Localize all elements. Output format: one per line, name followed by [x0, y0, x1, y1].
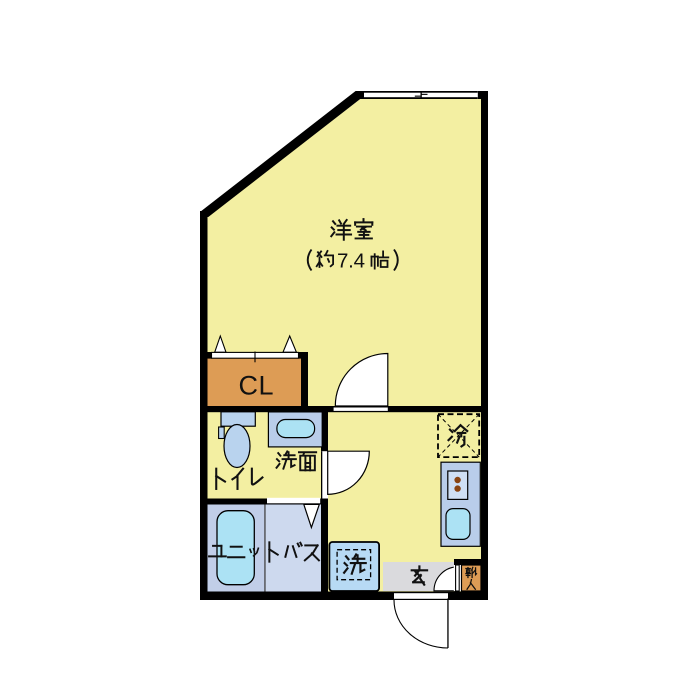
svg-text:CL: CL: [239, 371, 275, 401]
svg-text:7.4: 7.4: [337, 249, 365, 272]
